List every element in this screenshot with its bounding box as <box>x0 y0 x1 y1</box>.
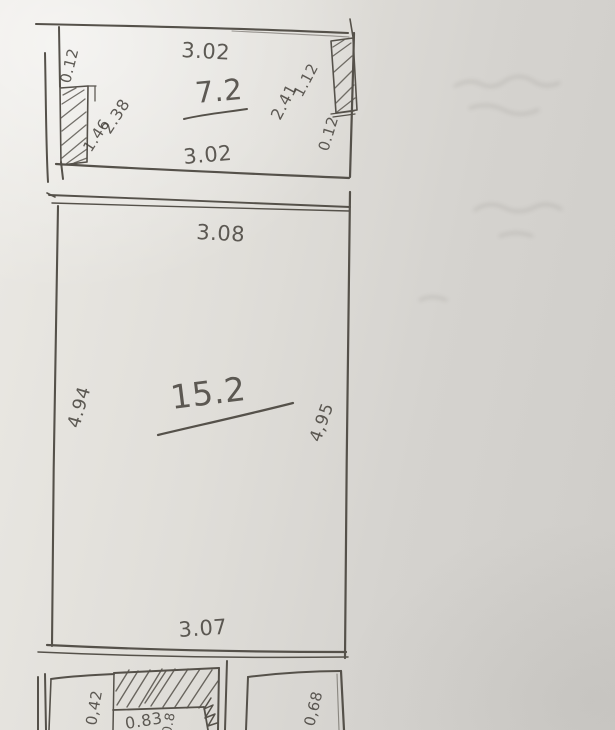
lower-room: 0,42 0.83 0.8 0,68 <box>38 661 344 730</box>
upper-area-underline <box>184 109 247 119</box>
lower-right-dim-label: 0,68 <box>300 689 326 728</box>
upper-right-wall-thickness-label: 0.12 <box>315 114 343 153</box>
lower-partial-dim-label: 0.8 <box>160 711 179 730</box>
bleed-through-marks <box>420 77 561 301</box>
lower-hatch-lines <box>116 669 218 708</box>
paper-sheet: 3.02 0.12 2.38 1.46 7.2 2.41 1.12 0.12 3… <box>0 0 615 730</box>
main-left-height-label: 4.94 <box>64 384 96 430</box>
left-window-hatch <box>61 88 87 164</box>
main-right-height-label: 4,95 <box>306 400 338 444</box>
upper-room: 3.02 0.12 2.38 1.46 7.2 2.41 1.12 0.12 3… <box>36 19 357 182</box>
main-area-label: 15.2 <box>168 369 248 417</box>
upper-right-window-label: 1.12 <box>290 60 323 100</box>
main-room: 3.08 15.2 4.94 4,95 3.07 <box>38 192 350 658</box>
upper-bottom-width-label: 3.02 <box>182 141 233 169</box>
right-window-hatch <box>333 40 355 112</box>
main-top-width-label: 3.08 <box>196 220 246 247</box>
upper-area-label: 7.2 <box>194 72 244 110</box>
lower-left-dim-label: 0,42 <box>82 689 106 727</box>
lower-niche-width-label: 0.83 <box>124 708 164 730</box>
upper-top-width-label: 3.02 <box>181 38 231 65</box>
main-bottom-width-label: 3.07 <box>178 615 228 642</box>
floorplan-sketch: 3.02 0.12 2.38 1.46 7.2 2.41 1.12 0.12 3… <box>0 0 615 730</box>
